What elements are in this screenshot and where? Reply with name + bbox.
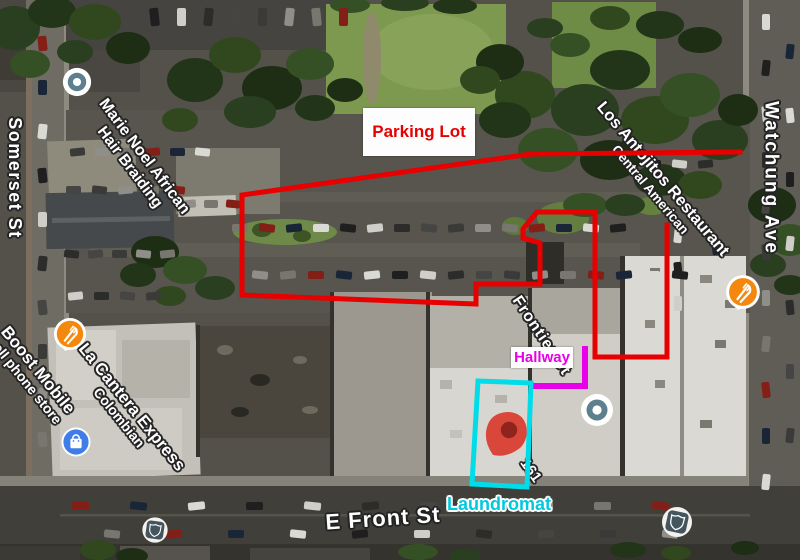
street-label-somerset: Somerset St — [5, 117, 25, 239]
restaurant-icon[interactable] — [724, 273, 762, 311]
satellite-imagery — [0, 0, 800, 560]
poi-dot-icon[interactable] — [580, 393, 614, 427]
street-label-watchung: Watchung Ave — [760, 101, 781, 255]
satellite-map: Somerset St Watchung Ave E Front St Fron… — [0, 0, 800, 560]
poi-dot-icon[interactable] — [62, 67, 92, 97]
laundromat-label: Laundromat — [447, 494, 551, 514]
hallway-label: Hallway — [511, 347, 573, 368]
parking-lot-label-text: Parking Lot — [372, 122, 466, 142]
shopping-bag-icon[interactable] — [61, 427, 92, 458]
route-shield-icon[interactable] — [661, 506, 693, 538]
route-shield-icon[interactable] — [142, 517, 169, 544]
hallway-label-text: Hallway — [514, 349, 570, 366]
parking-lot-label: Parking Lot — [363, 108, 475, 156]
